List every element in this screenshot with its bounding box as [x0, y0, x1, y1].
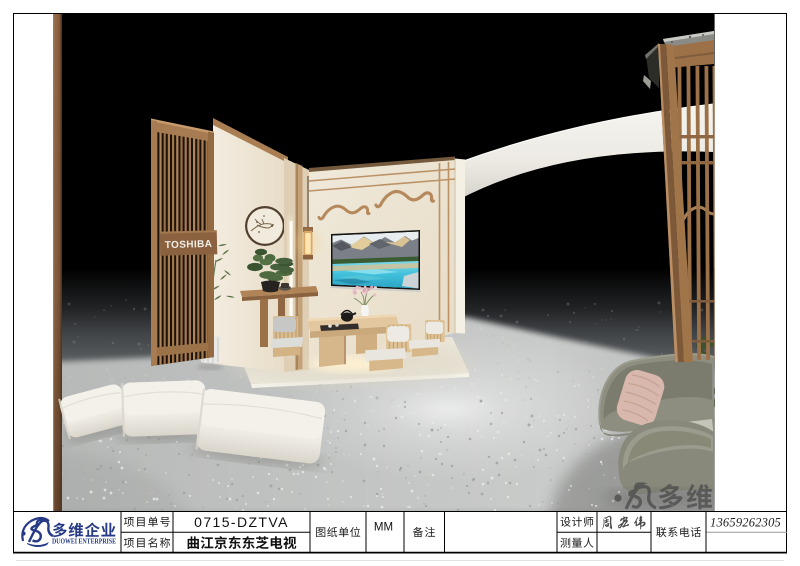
svg-text:DUOWEI ENTERPRISE: DUOWEI ENTERPRISE — [52, 538, 116, 546]
svg-text:13659262305: 13659262305 — [710, 515, 781, 529]
svg-text:0715-DZTVA: 0715-DZTVA — [194, 514, 289, 530]
svg-text:TOSHIBA: TOSHIBA — [165, 239, 213, 251]
svg-text:MM: MM — [374, 522, 393, 534]
